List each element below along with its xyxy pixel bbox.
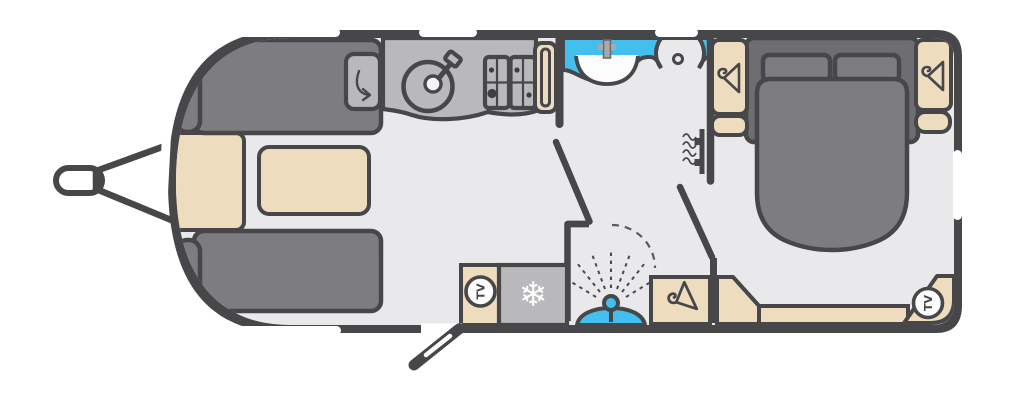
hob-burner [526,92,531,97]
tall-unit [535,43,556,112]
hob [485,57,536,108]
caravan-floorplan: TV ❄ TV [0,0,1020,400]
wardrobe-left-locker [712,116,747,135]
floorplan-svg: TV ❄ TV [0,0,1020,400]
shower-head [604,296,618,310]
hob-burner [487,89,496,98]
wardrobe-foot [651,277,710,324]
tv-point-rear: TV [914,289,943,318]
lounge-table [259,147,369,214]
bed-mattress [757,79,907,250]
hob-burner [514,67,519,72]
snowflake-icon: ❄ [519,275,548,315]
window-bottom [231,326,341,335]
wardrobe-left [712,40,747,114]
window-rear [953,150,962,220]
tv-label: TV [922,295,935,312]
window-top-1 [227,28,340,37]
hob-burner [489,67,494,72]
window-top-2 [419,28,477,37]
sofa-bottom [194,231,381,311]
wardrobe-right-locker [916,112,950,132]
rear-shelf [759,306,908,324]
toilet-flush-button [674,55,683,64]
tv-label: TV [475,283,488,300]
window-top-3 [655,28,698,37]
tv-point-kitchen: TV [466,277,495,306]
wardrobe-right [916,40,951,110]
